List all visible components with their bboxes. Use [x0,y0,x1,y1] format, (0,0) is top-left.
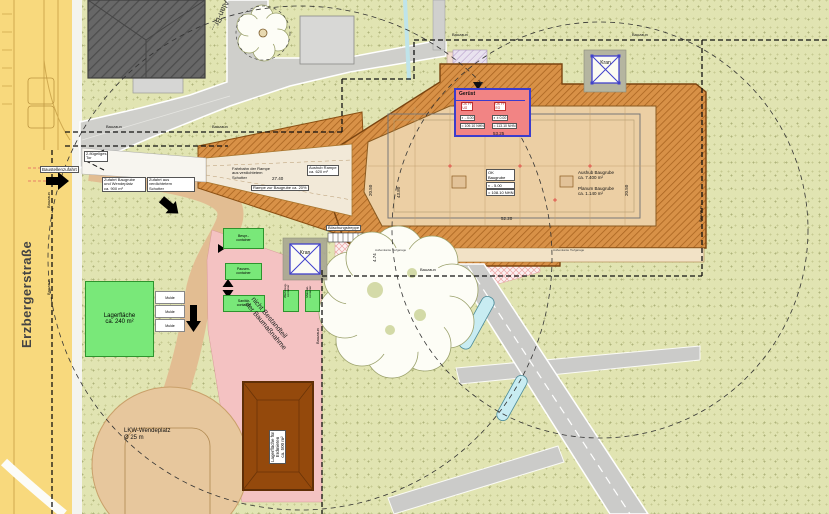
level-value-eg: ◐ ± 0.00 [492,115,508,121]
level-nhn-ug: = 109.10 NHN [460,123,485,129]
gravel-access-label: Zufahrt aus verdichtetem Schotter [147,177,195,192]
fence-label: Bauzaun [106,125,122,129]
road-erzbergerstrasse [0,0,82,514]
level-marker-icon: ◐ [462,116,464,120]
skip-container: Mulde [155,291,185,304]
hatched-zone [453,50,487,64]
container-tools-label: Werkzeug- container [284,283,291,297]
fence-label: Bauzaun [699,206,703,222]
storage-area-label: Lagerfläche ca. 240 m² [104,313,135,325]
pit-excavation-label: Aushub Baugrube ca. 7.400 m² [578,170,614,180]
pit-level-nhn: = 108.10 NHN [486,189,515,196]
building-top-center [300,16,354,64]
dim-left2: 43.80 [396,187,401,198]
path-strip [433,0,445,50]
access-area-label: Zufahrt Baugrube und Wendeplatz ca. 900 … [102,177,146,192]
ramp-excavation-label: Aushub Rampe ca. 620 m² [307,165,339,176]
level-number: - 4.00 [465,116,474,120]
skip-container: Mulde [155,305,185,318]
pit-level-value: ◐ - 5.00 [486,182,515,189]
container-material: Material- container [305,290,320,312]
fence-label: Bauzaun [632,33,648,37]
creek [405,0,409,80]
crane-label: Kran [290,250,320,256]
entrance-label: Baustellenzufahrt [40,166,79,173]
pit-level-box: OK Baugrube ◐ - 5.00 = 108.10 NHN [486,169,515,197]
turning-area-label: LKW-Wendeplatz Ø 25 m [124,428,170,441]
level-marker-icon: ◐ [488,183,490,188]
level-label-eg: OK FF EG [494,102,506,111]
level-value-ug: ◐ - 4.00 [460,115,475,121]
fence-label: Bauzaun [420,268,436,272]
pit-planum-label: Planum Baugrube ca. 1.140 m² [578,186,614,196]
arrow-ramp-icon [156,193,183,219]
dim-left: 20.50 [368,185,373,196]
crane-top-right [584,50,626,92]
level-nhn-eg: = 113.10 NHN [492,123,517,129]
slope-stair-label: Böschungstreppe [326,225,361,231]
level-label-ug: OK FF UG [461,102,473,111]
dim-berm: 4.74 [372,253,377,262]
excavation [198,64,706,266]
container-tools: Werkzeug- container [283,290,299,312]
ramp-length-dim: 27.40 [272,176,283,181]
skip-container: Mulde [155,319,185,332]
fence-label: Bauzaun [47,279,51,295]
container-break: Pausen- container [225,263,262,280]
pit-ok-label: OK Baugrube [486,169,515,181]
container-meeting: Bespr.- container [223,228,264,249]
scaffold-title: Gerüst [459,92,475,98]
ramp-grade-label: Rampe zur Baugrube ca. 20% [251,185,309,191]
building-existing [88,0,205,78]
crane-left [283,238,327,280]
soil-storage-label: Lagerfläche für Erdmieten ca. 500 m² [269,430,286,464]
dim-building-width: 53.25 [493,131,504,136]
fence-label: Bauzaun [316,328,320,344]
garage-edge-label: Außenkante Tiefgarage [553,249,584,252]
storage-area-240: Lagerfläche ca. 240 m² [85,281,154,357]
container-material-label: Material- container [306,285,313,297]
gate-label: 2-flügeliges Tor [84,151,108,162]
site-plan: Alan-Br... Erzbergerstraße Bauzaun Bauza… [0,0,829,514]
scaffold-box: Gerüst OK FF UG ◐ - 4.00 = 109.10 NHN OK… [454,88,531,137]
garage-edge-label: Außenkante Tiefgarage [375,249,406,252]
ramp-surface-label: Fahrbahn der Rampe aus verdichtetem Scho… [232,167,270,180]
level-marker-icon: ◐ [494,116,496,120]
fence-label: Bauzaun [452,33,468,37]
crane-label: Kran [592,60,619,66]
street-name-left: Erzbergerstraße [20,241,35,348]
level-number: ± 0.00 [497,116,507,120]
fence-label: Bauzaun [47,192,51,208]
fence-label: Bauzaun [212,125,228,129]
dim-pit-width: 52.20 [501,216,512,221]
level-number: - 5.00 [492,183,502,188]
dim-right: 20.50 [624,185,629,196]
